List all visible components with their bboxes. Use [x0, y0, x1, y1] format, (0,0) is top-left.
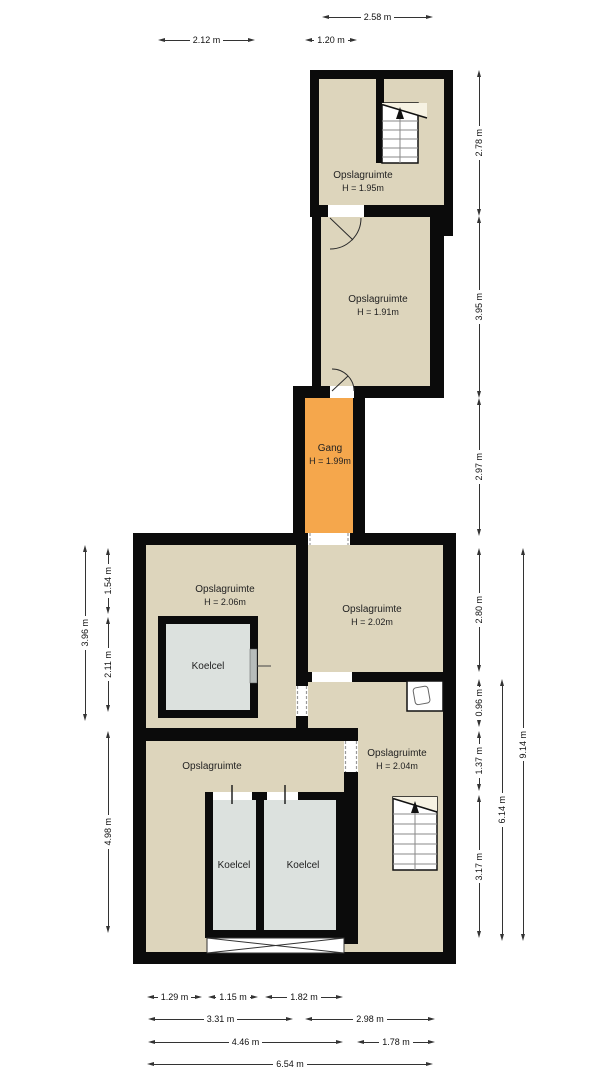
dimension-2-97: 2.97 m	[473, 398, 485, 536]
room-label-gang: GangH = 1.99m	[309, 443, 351, 467]
room-label-koelcel-sw1: Koelcel	[218, 860, 251, 873]
dimension-2-78: 2.78 m	[473, 70, 485, 216]
dimension-3-96: 3.96 m	[79, 545, 91, 721]
room-label-storage-ne: OpslagruimteH = 2.02m	[342, 604, 401, 628]
dimension-2-12: 2.12 m	[158, 35, 255, 45]
koelcel-door-icon	[250, 649, 257, 683]
fixture-icon	[407, 681, 443, 711]
dimension-4-46: 4.46 m	[148, 1037, 343, 1047]
dimension-3-31: 3.31 m	[148, 1014, 293, 1024]
floor-plan-drawing	[0, 0, 607, 1080]
room-label-koelcel-sw2: Koelcel	[287, 860, 320, 873]
dimension-1-37: 1.37 m	[473, 731, 485, 791]
dimension-2-98: 2.98 m	[305, 1014, 435, 1024]
room-label-storage-se: OpslagruimteH = 2.04m	[367, 748, 426, 772]
dimension-1-20: 1.20 m	[305, 35, 357, 45]
hatched-platform-icon	[207, 938, 344, 953]
dimension-9-14: 9.14 m	[517, 548, 529, 941]
dimension-4-98: 4.98 m	[102, 731, 114, 933]
room-label-koelcel-nw: Koelcel	[192, 661, 225, 674]
room-label-storage-sw: Opslagruimte	[182, 761, 241, 774]
dimension-3-17: 3.17 m	[473, 795, 485, 938]
dimension-3-95: 3.95 m	[473, 216, 485, 398]
dimension-6-14: 6.14 m	[496, 679, 508, 941]
dimension-2-80: 2.80 m	[473, 548, 485, 672]
dimension-6-54: 6.54 m	[147, 1059, 433, 1069]
staircase-lower-icon	[393, 797, 437, 870]
dimension-1-82: 1.82 m	[265, 992, 343, 1002]
dimension-2-11: 2.11 m	[102, 617, 114, 712]
dimension-1-15: 1.15 m	[208, 992, 258, 1002]
dimension-1-54: 1.54 m	[102, 548, 114, 614]
dimension-2-58: 2.58 m	[322, 12, 433, 22]
room-label-storage-nw: OpslagruimteH = 2.06m	[195, 584, 254, 608]
room-label-storage-top: OpslagruimteH = 1.95m	[333, 170, 392, 194]
dimension-0-96: 0.96 m	[473, 679, 485, 727]
floor-plan: OpslagruimteH = 1.95m OpslagruimteH = 1.…	[0, 0, 607, 1080]
dimension-1-78: 1.78 m	[357, 1037, 435, 1047]
dimension-1-29: 1.29 m	[147, 992, 202, 1002]
room-label-storage-mid: OpslagruimteH = 1.91m	[348, 294, 407, 318]
